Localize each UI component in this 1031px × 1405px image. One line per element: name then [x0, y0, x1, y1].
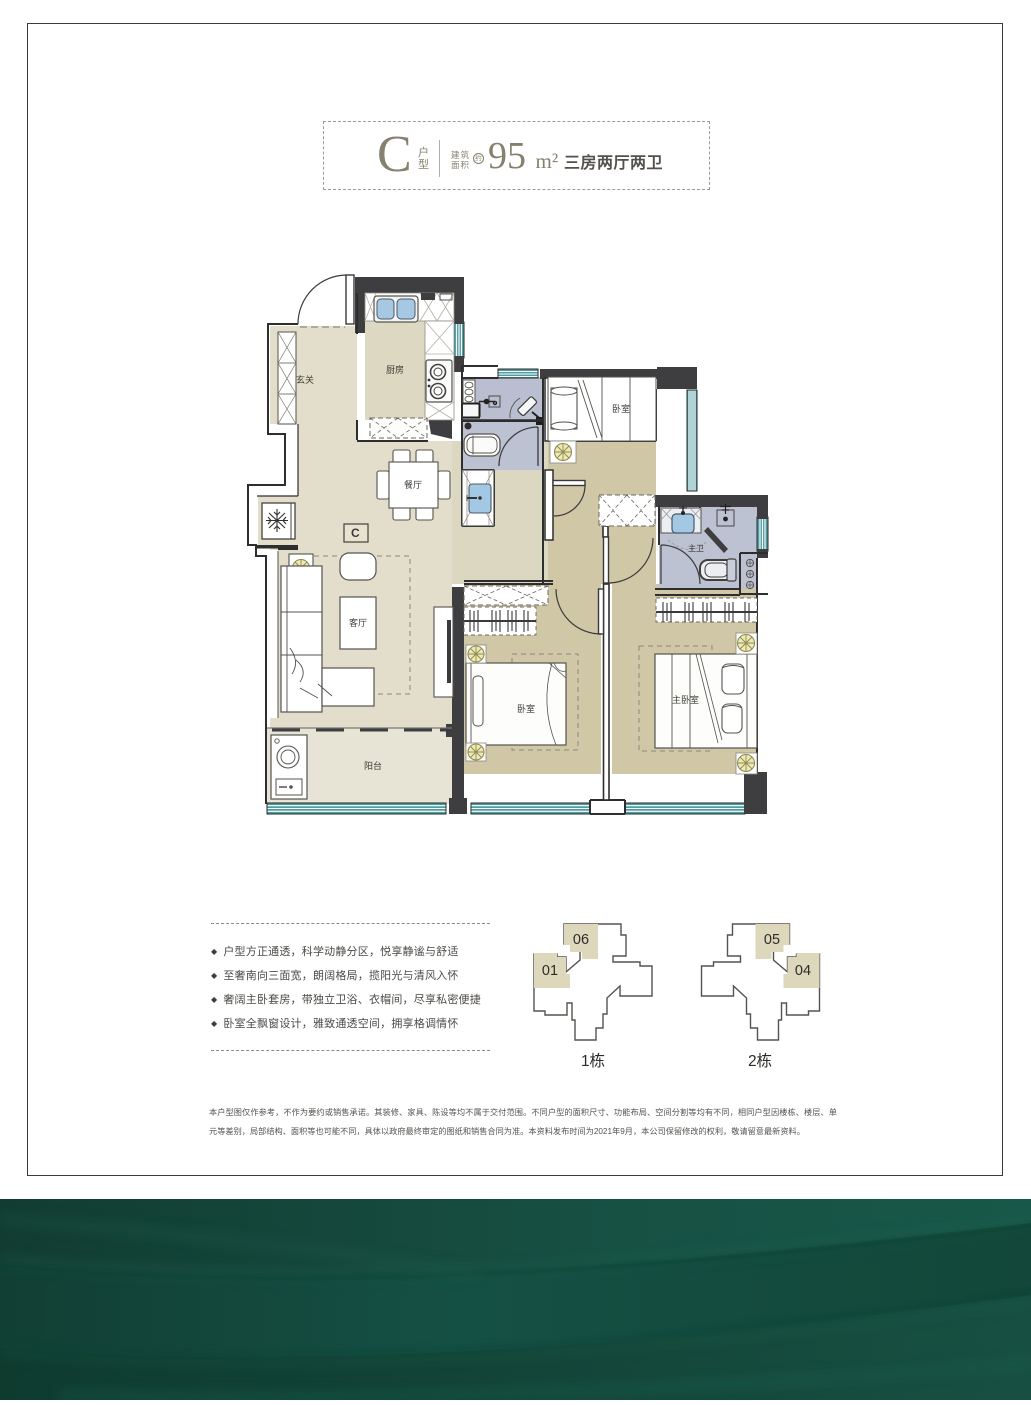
svg-text:C: C [351, 526, 360, 540]
svg-text:餐厅: 餐厅 [404, 479, 422, 490]
svg-text:主卧室: 主卧室 [672, 694, 699, 705]
svg-text:主卫: 主卫 [688, 543, 704, 553]
svg-text:玄关: 玄关 [296, 374, 314, 385]
svg-text:06: 06 [573, 932, 589, 948]
svg-text:阳台: 阳台 [364, 760, 382, 771]
svg-text:卧室: 卧室 [612, 403, 630, 414]
svg-text:04: 04 [795, 963, 811, 979]
svg-text:卧室: 卧室 [517, 703, 535, 714]
svg-text:客厅: 客厅 [349, 617, 367, 628]
svg-text:05: 05 [764, 932, 780, 948]
svg-text:01: 01 [542, 963, 558, 979]
svg-text:1栋: 1栋 [581, 1052, 605, 1070]
svg-text:2栋: 2栋 [748, 1052, 772, 1070]
svg-text:厨房: 厨房 [386, 364, 404, 375]
